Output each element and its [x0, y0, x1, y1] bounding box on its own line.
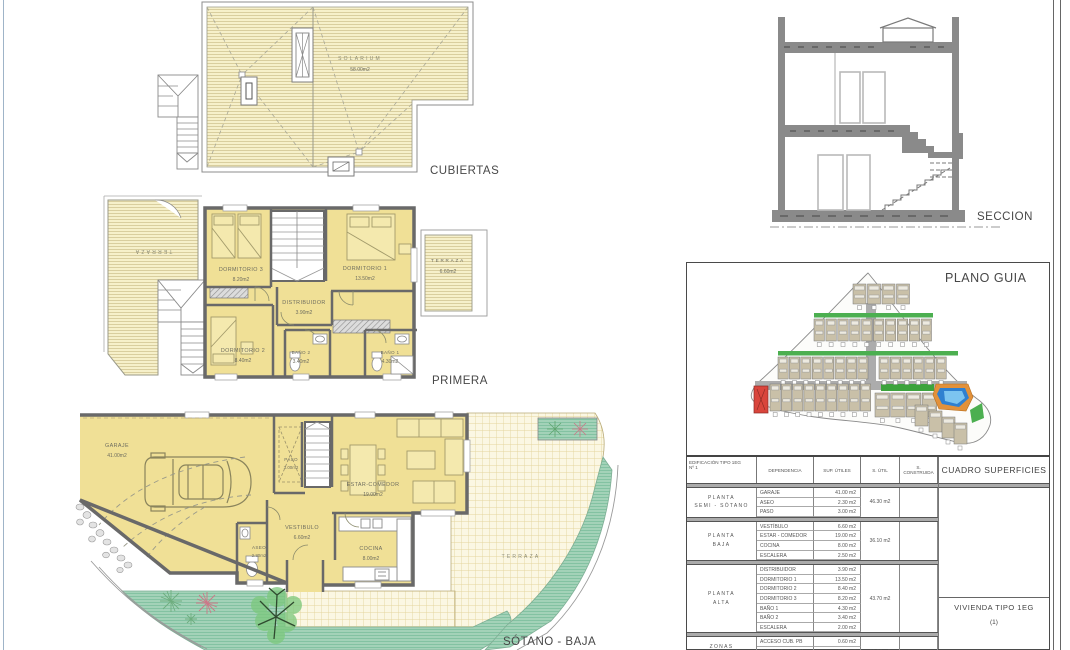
pool-area	[933, 384, 973, 411]
dependencia-cell: ACCESO CUB. PB	[757, 637, 814, 647]
cuadro-superficies-table: EDIFICACIÓN TIPO 1EGNº 1DEPENDENCIASUP. …	[687, 455, 1049, 649]
planter-top-right	[538, 418, 597, 440]
s-construida-cell	[900, 565, 938, 632]
solarium-area: 58.00m2	[350, 67, 370, 73]
planta-cell: PLANTAALTA	[687, 565, 757, 632]
terraza-izq-label: TERRAZA	[134, 248, 173, 254]
green-strip-row2	[814, 313, 933, 318]
lower-doors	[818, 155, 870, 210]
dormitorio2-area: 8.40m2	[235, 358, 252, 364]
estar-area: 19.00m2	[363, 492, 383, 498]
roof-vent-box	[241, 77, 257, 105]
dormitorio2-label: DORMITORIO 2	[221, 348, 265, 354]
superficie-cell: 4.30 m2	[814, 604, 861, 614]
bano1-label: BAÑO 1	[381, 349, 400, 355]
sotano-title: SÓTANO - BAJA	[503, 635, 596, 648]
seccion-drawing: SECCION	[770, 5, 1062, 230]
drawing-sheet: SOLARIUM 58.00m2 CUBIERTAS TERRAZA	[0, 0, 1070, 650]
planta-cell: PLANTABAJA	[687, 522, 757, 560]
aseo-area: 2.30m2	[252, 553, 267, 558]
green-strip-main	[881, 384, 934, 391]
vestibulo-area: 6.60m2	[294, 535, 311, 541]
superficie-cell: 2.00 m2	[814, 623, 861, 633]
primera-plan-drawing: TERRAZA	[95, 192, 515, 396]
primera-title: PRIMERA	[432, 375, 488, 387]
dependencia-cell: DORMITORIO 2	[757, 584, 814, 594]
garaje-area: 41.00m2	[107, 453, 127, 459]
stairwell-primera	[271, 211, 324, 281]
terraza-der-area: 6.60m2	[440, 269, 457, 275]
dependencia-cell: DISTRIBUIDOR	[757, 565, 814, 575]
sheet-border-left	[3, 0, 4, 650]
cuadro-title: CUADRO SUPERFICIES	[939, 457, 1049, 483]
exterior-stair-roof	[158, 75, 198, 169]
roof-gable	[880, 18, 936, 42]
dependencia-cell: ESCALERA	[757, 623, 814, 633]
s-util-cell: 65.20 m2	[861, 637, 900, 650]
superficie-cell: 41.00 m2	[814, 488, 861, 498]
distribuidor-label: DISTRIBUIDOR	[282, 300, 325, 306]
wardrobe-left	[210, 287, 248, 298]
roof-chimney-box	[328, 157, 354, 176]
plano-guia-title: PLANO GUIA	[945, 271, 1027, 285]
s-util-cell: 36.10 m2	[861, 522, 900, 560]
cocina-area: 8.00m2	[363, 556, 380, 562]
cuadro-table-left: EDIFICACIÓN TIPO 1EGNº 1DEPENDENCIASUP. …	[687, 457, 938, 649]
solarium-label: SOLARIUM	[338, 56, 382, 62]
superficie-cell: 3.40 m2	[814, 613, 861, 623]
dependencia-cell: DORMITORIO 1	[757, 575, 814, 585]
planta-cell: PLANTASEMI - SÓTANO	[687, 488, 757, 517]
s-construida-cell	[900, 522, 938, 560]
paso-label: PASO	[284, 457, 298, 462]
dependencia-cell: BAÑO 1	[757, 604, 814, 614]
dependencia-cell: PASO	[757, 507, 814, 517]
superficie-cell: 19.00 m2	[814, 531, 861, 541]
vestibulo-label: VESTIBULO	[285, 525, 319, 531]
cubiertas-title: CUBIERTAS	[430, 165, 499, 177]
cubiertas-plan-drawing: SOLARIUM 58.00m2 CUBIERTAS	[145, 0, 525, 185]
distribuidor-area: 3.90m2	[296, 310, 313, 316]
roof-skylight	[292, 28, 313, 82]
upper-stair-steps	[902, 125, 934, 153]
s-construida-cell	[900, 488, 938, 517]
green-strip-row3	[778, 351, 958, 356]
dependencia-cell: ESTAR - COMEDOR	[757, 531, 814, 541]
s-construida-cell	[900, 637, 938, 650]
dependencia-cell: VESTÍBULO	[757, 522, 814, 532]
estar-label: ESTAR-COMEDOR	[347, 482, 400, 488]
superficie-cell: 8.40 m2	[814, 584, 861, 594]
dependencia-cell: GARAJE	[757, 488, 814, 498]
terraza-der-label: TERRAZA	[431, 258, 465, 263]
vivienda-number: (1)	[939, 619, 1049, 626]
superficie-cell: 0.60 m2	[814, 637, 861, 647]
dependencia-cell: ESCALERA	[757, 551, 814, 561]
dependencia-cell: DORMITORIO 3	[757, 594, 814, 604]
superficie-cell: 6.60 m2	[814, 522, 861, 532]
terraza-derecha: TERRAZA 6.60m2	[421, 230, 487, 316]
cuadro-table-right: CUADRO SUPERFICIES VIVIENDA TIPO 1EG (1)	[938, 457, 1049, 649]
planta-cell: ZONASEXTERIORES	[687, 637, 757, 650]
dormitorio1-area: 13.50m2	[355, 276, 375, 282]
superficie-cell: 2.30 m2	[814, 498, 861, 508]
superficie-cell: 8.20 m2	[814, 594, 861, 604]
cuadro-empty-cell	[939, 488, 1049, 598]
plano-guia-panel: PLANO GUIA EDIFICACIÓN TIPO 1EGNº 1DEPEN…	[686, 262, 1050, 650]
dormitorio3-label: DORMITORIO 3	[219, 267, 263, 273]
exterior-stair-primera	[158, 280, 205, 375]
superficie-cell: 8.00 m2	[814, 541, 861, 551]
plano-guia-drawing: PLANO GUIA	[687, 263, 1048, 455]
lower-stair	[882, 163, 952, 210]
upper-doors	[840, 72, 885, 123]
bano2-area: 3.40m2	[293, 359, 310, 365]
dependencia-cell: COCINA	[757, 541, 814, 551]
s-util-cell: 43.70 m2	[861, 565, 900, 632]
superficie-cell: 13.50 m2	[814, 575, 861, 585]
seccion-title: SECCION	[977, 211, 1033, 223]
bano1-area: 4.30m2	[382, 359, 399, 365]
superficie-cell: 3.90 m2	[814, 565, 861, 575]
dormitorio1-label: DORMITORIO 1	[343, 266, 387, 272]
terraza-sotano-label: TERRAZA	[502, 554, 541, 560]
dormitorio3-area: 8.20m2	[233, 277, 250, 283]
superficie-cell: 3.00 m2	[814, 507, 861, 517]
stairwell-sotano	[305, 422, 330, 487]
sotano-baja-plan-drawing: GARAJE 41.00m2 PASO 3.00m2 ESTAR-COMEDOR…	[55, 395, 630, 650]
paso-area: 3.00m2	[284, 465, 299, 470]
superficie-cell: 2.50 m2	[814, 551, 861, 561]
s-util-cell: 46.30 m2	[861, 488, 900, 517]
vivienda-label: VIVIENDA TIPO 1EG	[939, 598, 1049, 612]
aseo-label: ASEO	[252, 545, 266, 550]
garaje-label: GARAJE	[105, 443, 129, 449]
dependencia-cell: BAÑO 2	[757, 613, 814, 623]
dependencia-cell: ASEO	[757, 498, 814, 508]
bano2-label: BAÑO 2	[292, 349, 311, 355]
cocina-label: COCINA	[359, 546, 382, 552]
